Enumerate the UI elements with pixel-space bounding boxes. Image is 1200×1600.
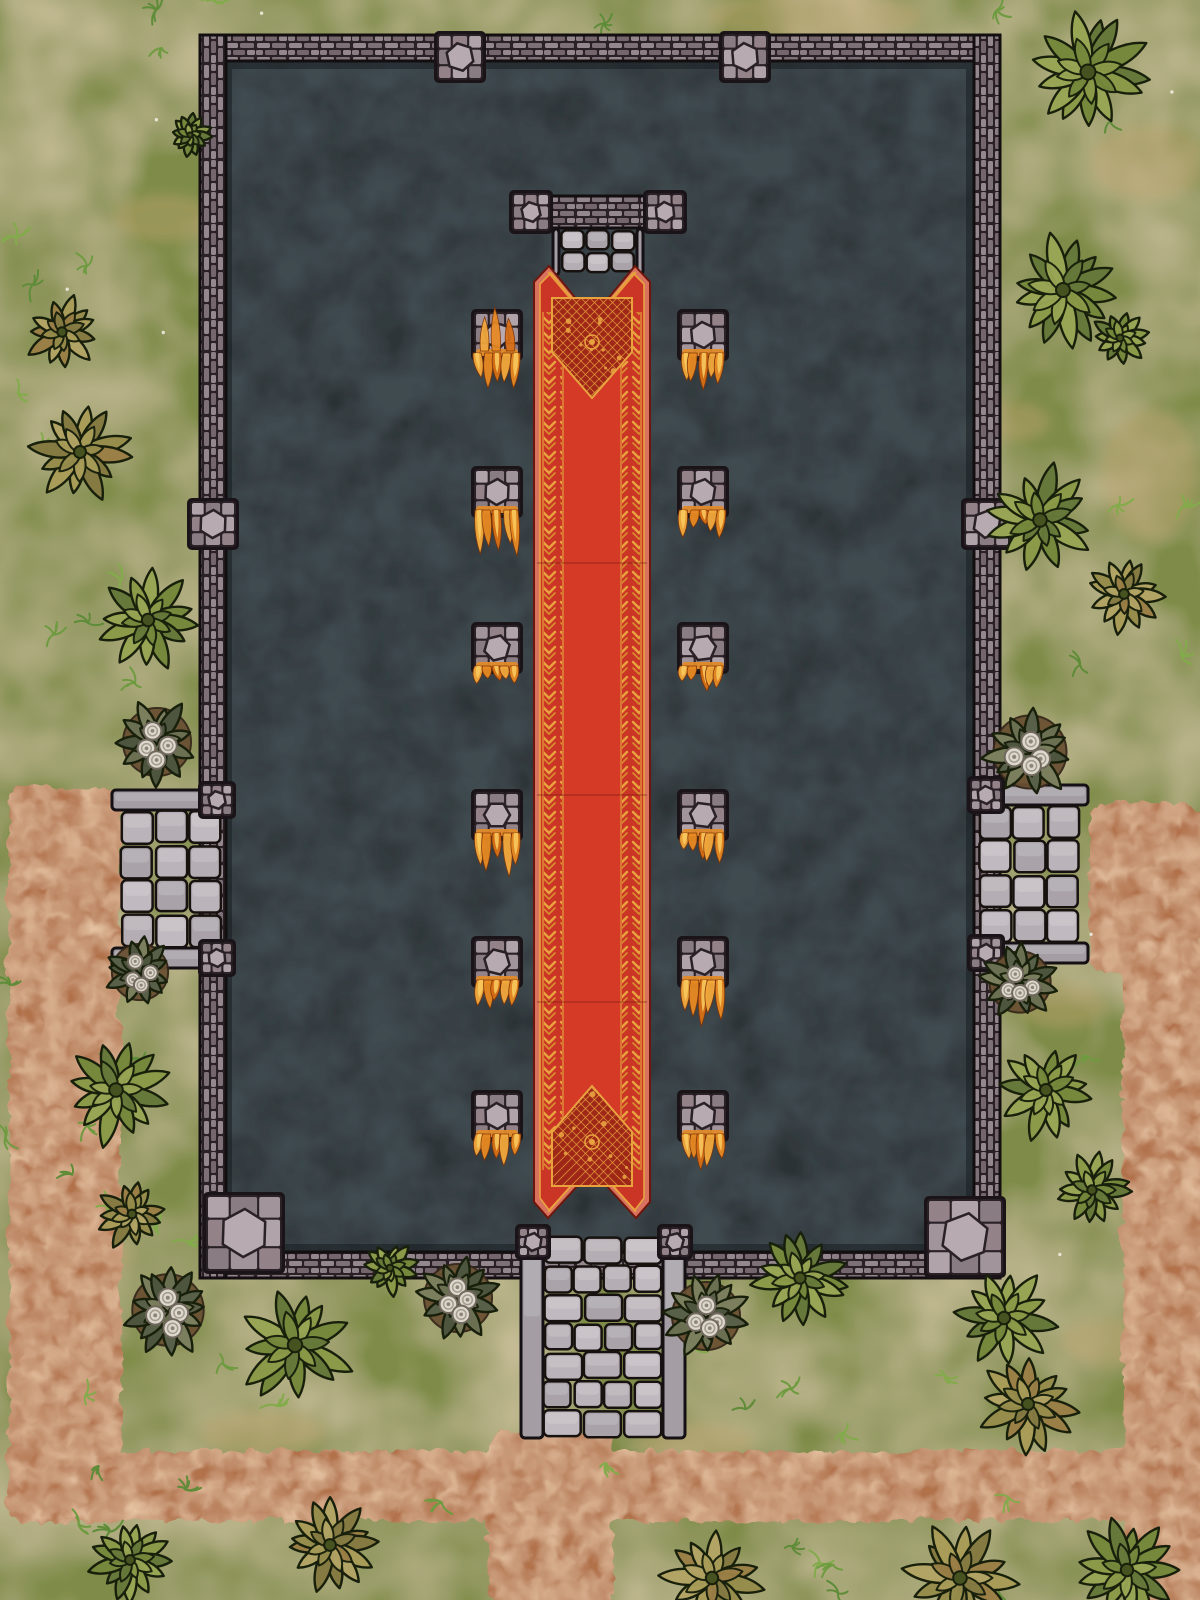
stair-cap (657, 1224, 693, 1260)
stair-cap (515, 1224, 551, 1260)
white-rosette-flower (1012, 985, 1028, 1001)
white-rosette-flower (1022, 756, 1041, 775)
corner-block (924, 1196, 1006, 1278)
tiny-flower-speck (155, 118, 158, 121)
south-staircase (515, 1224, 693, 1438)
carpet-chevron-band (544, 312, 562, 1170)
battle-map-canvas (0, 0, 1200, 1600)
gate-cap (509, 190, 553, 234)
gate-cap (643, 190, 687, 234)
white-rosette-flower (128, 954, 143, 969)
wall-pillar (719, 31, 771, 83)
tiny-flower-speck (66, 288, 69, 291)
stair-cap (198, 781, 236, 819)
temple-wall-right (974, 35, 1000, 1278)
scene-svg (0, 0, 1200, 1600)
white-rosette-flower (143, 965, 158, 980)
white-rosette-flower (701, 1319, 719, 1337)
temple-wall-top (200, 35, 1000, 61)
white-rosette-flower (1005, 747, 1024, 766)
brazier-pedestal (471, 622, 523, 684)
white-rosette-flower (1007, 966, 1023, 982)
tiny-flower-speck (1170, 90, 1173, 93)
carpet-chevron-band (622, 312, 640, 1170)
wall-pillar (187, 498, 239, 550)
white-rosette-flower (144, 722, 162, 740)
temple-wall-left (200, 35, 226, 1278)
white-rosette-flower (698, 1297, 716, 1315)
stair-cap (198, 939, 236, 977)
tiny-flower-speck (1058, 1253, 1061, 1256)
tiny-flower-speck (260, 12, 263, 15)
brazier-pedestal (471, 466, 523, 556)
white-rosette-flower (134, 978, 149, 993)
white-rosette-flower (146, 1306, 164, 1324)
white-rosette-flower (148, 751, 166, 769)
stair-cap (967, 776, 1005, 814)
white-rosette-flower (1021, 732, 1040, 751)
wall-pillar (434, 31, 486, 83)
tiny-flower-speck (162, 331, 165, 334)
corner-block (203, 1192, 285, 1274)
white-rosette-flower (163, 1319, 181, 1337)
tiny-flower-speck (1089, 933, 1092, 936)
white-rosette-flower (452, 1306, 470, 1324)
